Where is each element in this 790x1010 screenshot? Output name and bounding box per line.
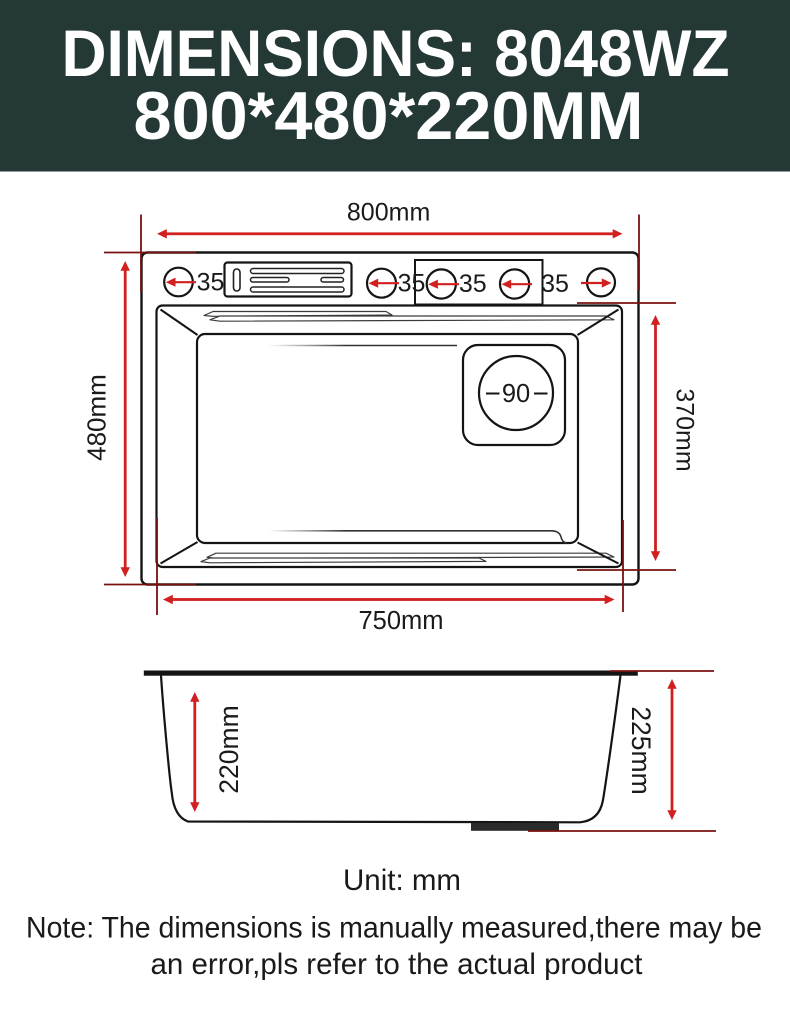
svg-text:35: 35 <box>459 270 487 298</box>
svg-text:90: 90 <box>502 380 530 408</box>
svg-text:Note: The dimensions is manual: Note: The dimensions is manually measure… <box>26 912 762 945</box>
svg-text:480mm: 480mm <box>82 374 112 461</box>
svg-text:220mm: 220mm <box>214 705 244 793</box>
svg-text:800mm: 800mm <box>347 198 430 226</box>
svg-text:800*480*220MM: 800*480*220MM <box>134 78 644 154</box>
svg-text:Unit: mm: Unit: mm <box>343 864 461 897</box>
svg-text:an error,pls refer to the actu: an error,pls refer to the actual product <box>151 948 644 981</box>
svg-text:35: 35 <box>398 270 426 298</box>
svg-text:370mm: 370mm <box>671 388 699 471</box>
svg-text:225mm: 225mm <box>626 706 656 794</box>
svg-text:750mm: 750mm <box>358 607 443 635</box>
svg-text:35: 35 <box>541 270 569 298</box>
svg-text:35: 35 <box>197 269 225 297</box>
